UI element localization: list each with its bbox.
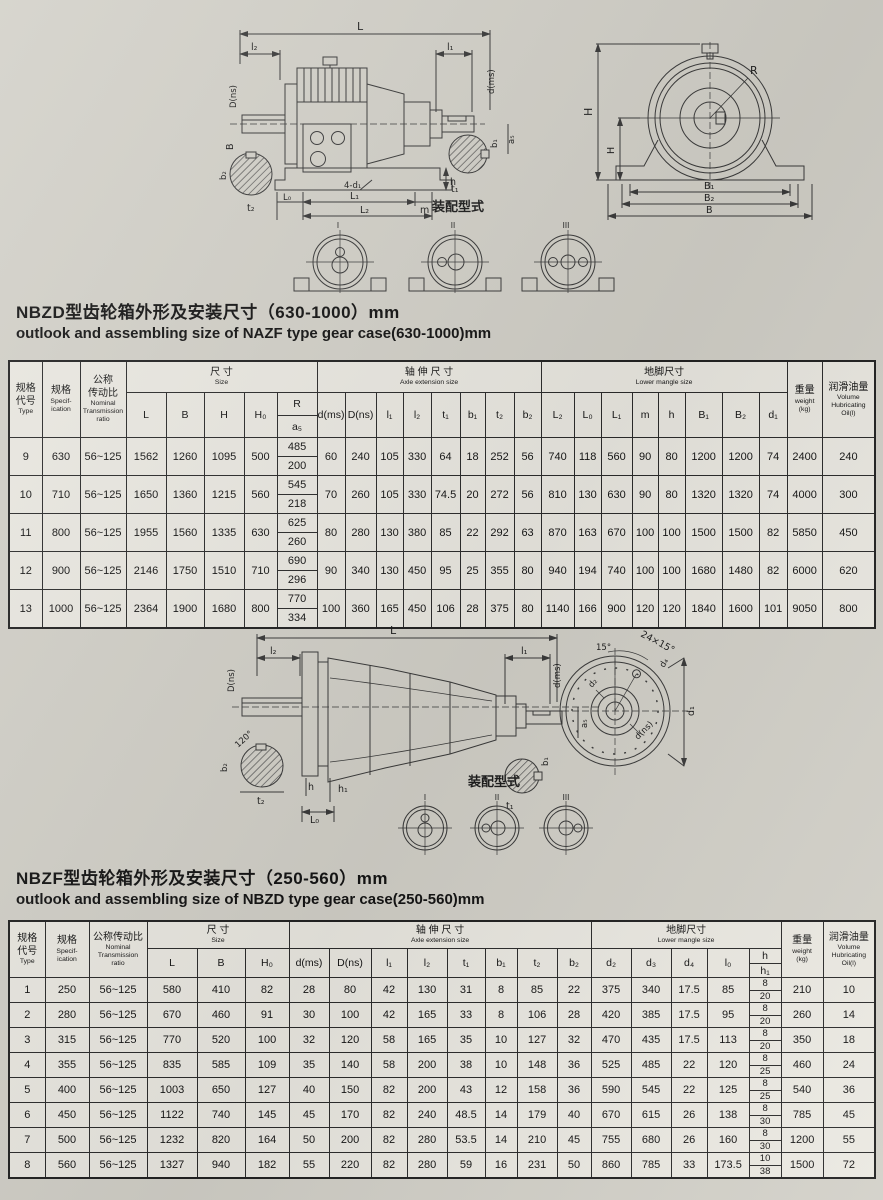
cell: 130 [407,978,447,1003]
cell: 450 [45,1103,89,1128]
col-header-t1: t₁ [431,393,460,438]
variant2-mark-3: III [563,793,570,802]
cell: 109 [245,1053,289,1078]
dim-label-Dns-2: D(ns) [227,669,237,692]
technical-drawing-nbzf: L l₂ l₁ D(ns) d(ms) a₅ 120° b₂ t₂ h h₁ L… [0,616,883,864]
cell: 40 [289,1078,329,1103]
cell: 55 [289,1153,329,1179]
cell: 85 [431,514,460,552]
cell: 2 [9,1003,45,1028]
cell: 28 [557,1003,591,1028]
dim-label-R: R [750,64,758,77]
cell: 820 [749,1003,781,1028]
cell: 250 [45,978,89,1003]
dim-label-b1: b₁ [490,139,500,148]
cell: 355 [485,552,514,590]
cell: 5 [9,1078,45,1103]
col-header-t2-t2: t₂ [517,949,557,978]
dim-label-b2-2: b₂ [220,763,230,772]
variant-mark-2: II [451,221,455,230]
cell: 615 [631,1103,671,1128]
cell: 80 [658,438,685,476]
cell: 28 [289,978,329,1003]
cell: 170 [329,1103,371,1128]
cell: 460 [781,1053,823,1078]
assembly-type-caption: 装配型式 [431,199,484,215]
cell: 630 [42,438,80,476]
cell: 56 [514,438,541,476]
group-header-axle: 轴 伸 尺 寸Axle extension size [317,361,541,393]
cell: 280 [45,1003,89,1028]
dim-label-h1-2: h₁ [338,784,348,795]
dim-label-d1: d₁ [686,706,697,716]
cell: 2146 [126,552,166,590]
cell: 82 [759,514,787,552]
cell: 82 [245,978,289,1003]
cell: 260 [781,1003,823,1028]
dimension-table-nbzf: 规格 代号Type 规格Specif- ication 公称传动比Nominal… [8,920,876,1179]
cell: 1955 [126,514,166,552]
cell: 240 [345,438,376,476]
cell: 690296 [277,552,317,590]
col-header-ratio: 公称 传动比Nominal Transmission ratio [80,361,126,438]
cell: 10 [823,978,875,1003]
cell: 64 [431,438,460,476]
cell: 22 [557,978,591,1003]
dim-label-dns-front: d(ns) [633,720,656,743]
col-header-dms: d(ms) [317,393,345,438]
cell: 127 [517,1028,557,1053]
cell: 12 [485,1078,517,1103]
cell: 620 [822,552,875,590]
cell: 1320 [685,476,722,514]
dim-label-B-front: B [706,205,713,216]
cell: 125 [707,1078,749,1103]
cell: 42 [371,1003,407,1028]
col-header-l1-t2: l₁ [371,949,407,978]
cell: 31 [447,978,485,1003]
cell: 8 [485,978,517,1003]
cell: 145 [245,1103,289,1128]
cell: 56~125 [89,1053,147,1078]
table-row: 645056~1251122740145451708224048.5141794… [9,1103,875,1128]
cell: 590 [591,1078,631,1103]
cell: 520 [197,1028,245,1053]
cell: 330 [403,476,431,514]
cell: 940 [541,552,574,590]
cell: 1095 [204,438,244,476]
col-header-spec-2: 规格Specif- ication [45,921,89,978]
cell: 18 [823,1028,875,1053]
cell: 830 [749,1128,781,1153]
cell: 4000 [787,476,822,514]
cell: 210 [781,978,823,1003]
cell: 22 [671,1078,707,1103]
cell: 10 [9,476,42,514]
cell: 525 [591,1053,631,1078]
col-header-L0: L₀ [574,393,601,438]
cell: 150 [329,1078,371,1103]
cell: 380 [403,514,431,552]
cell: 148 [517,1053,557,1078]
cell: 485200 [277,438,317,476]
cell: 74.5 [431,476,460,514]
cell: 500 [244,438,277,476]
cell: 74 [759,438,787,476]
cell: 1215 [204,476,244,514]
col-header-l2: l₂ [403,393,431,438]
cell: 95 [431,552,460,590]
cell: 45 [823,1103,875,1128]
cell: 14 [823,1003,875,1028]
cell: 17.5 [671,978,707,1003]
cell: 1335 [204,514,244,552]
col-header-type: 规格 代号Type [9,361,42,438]
cell: 173.5 [707,1153,749,1179]
cell: 1480 [722,552,759,590]
dim-label-l1: l₁ [447,42,454,53]
cell: 670 [591,1103,631,1128]
dim-label-L1: L₁ [350,191,359,202]
cell: 80 [329,978,371,1003]
cell: 470 [591,1028,631,1053]
cell: 82 [371,1128,407,1153]
cell: 90 [632,476,658,514]
cell: 1562 [126,438,166,476]
cell: 12 [9,552,42,590]
col-header-oil: 润滑油量Volume Hubricating Oil(l) [822,361,875,438]
cell: 710 [244,552,277,590]
cell: 70 [317,476,345,514]
cell: 53.5 [447,1128,485,1153]
cell: 375 [591,978,631,1003]
col-header-b2-t2: b₂ [557,949,591,978]
cell: 100 [329,1003,371,1028]
cell: 1500 [685,514,722,552]
cell: 56~125 [89,1003,147,1028]
cell: 630 [601,476,632,514]
cell: 625260 [277,514,317,552]
flange-gearbox-side-view [232,634,600,822]
cell: 252 [485,438,514,476]
col-header-dms-t2: d(ms) [289,949,329,978]
dim-label-b2: b₂ [219,171,229,180]
table-row: 540056~125100365012740150822004312158365… [9,1078,875,1103]
cell: 1560 [166,514,204,552]
cell: 210 [517,1128,557,1153]
cell: 545218 [277,476,317,514]
dim-label-dms-2: d(ms) [553,663,563,688]
dim-label-4-d1: 4-d₁ [344,181,361,191]
cell: 58 [371,1028,407,1053]
cell: 560 [244,476,277,514]
cell: 95 [707,1003,749,1028]
cell: 200 [329,1128,371,1153]
cell: 165 [407,1028,447,1053]
cell: 72 [823,1153,875,1179]
cell: 800 [42,514,80,552]
cell: 82 [371,1103,407,1128]
cell: 820 [749,1028,781,1053]
cell: 105 [376,476,403,514]
table-row: 1071056~12516501360121556054521870260105… [9,476,875,514]
assembly-type-caption-2: 装配型式 [467,774,520,790]
cell: 56~125 [89,978,147,1003]
cell: 56~125 [89,1028,147,1053]
col-header-d3: d₃ [631,949,671,978]
cell: 231 [517,1153,557,1179]
col-header-H0-2: H₀ [245,949,289,978]
cell: 1038 [749,1153,781,1179]
dim-label-B1: B₁ [704,181,715,192]
col-header-B-2: B [197,949,245,978]
cell: 260 [345,476,376,514]
cell: 280 [345,514,376,552]
dim-label-L0: L₀ [283,193,292,203]
cell: 25 [460,552,485,590]
cell: 26 [671,1128,707,1153]
cell: 755 [591,1128,631,1153]
cell: 182 [245,1153,289,1179]
cell: 545 [631,1078,671,1103]
cell: 630 [244,514,277,552]
cell: 650 [197,1078,245,1103]
col-header-b1: b₁ [460,393,485,438]
technical-drawing-nbzd: L l₂ l₁ D(ns) B d(ms) a₅ t₂ b₂ t₁ b₁ L₀ … [0,4,883,296]
cell: 11 [9,514,42,552]
cell: 1500 [781,1153,823,1179]
cell: 14 [485,1128,517,1153]
cell: 16 [485,1153,517,1179]
cell: 85 [707,978,749,1003]
cell: 82 [371,1153,407,1179]
group-header-size: 尺 寸Size [126,361,317,393]
dim-label-h-2: h [308,782,314,793]
col-header-L-2: L [147,949,197,978]
cell: 770 [147,1028,197,1053]
dim-label-B: B [225,143,236,150]
variant-mark-1: I [337,221,339,230]
section-title-2-zh: NBZF型齿轮箱外形及安装尺寸（250-560）mm [16,864,484,889]
cell: 2400 [787,438,822,476]
cell: 165 [407,1003,447,1028]
dim-label-l2: l₂ [251,42,258,53]
dim-label-H-inner: H [606,147,617,154]
table-row: 125056~125580410822880421303188522375340… [9,978,875,1003]
cell: 42 [371,978,407,1003]
cell: 1650 [126,476,166,514]
cell: 17.5 [671,1003,707,1028]
col-header-l1: l₁ [376,393,403,438]
cell: 785 [781,1103,823,1128]
cell: 56~125 [89,1128,147,1153]
cell: 105 [376,438,403,476]
cell: 45 [557,1128,591,1153]
col-header-b2: b₂ [514,393,541,438]
section-title-2: NBZF型齿轮箱外形及安装尺寸（250-560）mm outlook and a… [16,864,484,908]
dim-label-L0-2: L₀ [310,815,319,826]
dim-label-a5-2: a₅ [580,719,590,728]
table-row: 750056~1251232820164502008228053.5142104… [9,1128,875,1153]
table-row: 963056~125156212601095500485200602401053… [9,438,875,476]
cell: 58 [371,1053,407,1078]
section-title-2-en: outlook and assembling size of NBZD type… [16,891,484,908]
cell: 9 [9,438,42,476]
cell: 200 [407,1078,447,1103]
cell: 60 [317,438,345,476]
assembly-variant-diagrams-2 [398,801,593,855]
dim-label-L2draw: L [390,624,397,637]
table-row: 331556~125770520100321205816535101273247… [9,1028,875,1053]
col-header-ratio-2: 公称传动比Nominal Transmission ratio [89,921,147,978]
col-header-d4-t2: d₄ [671,949,707,978]
cell: 10 [485,1028,517,1053]
cell: 82 [371,1078,407,1103]
dim-label-Dns: D(ns) [229,85,239,108]
col-header-weight-2: 重量weight (kg) [781,921,823,978]
dim-label-m: m [420,205,429,216]
cell: 56~125 [89,1078,147,1103]
cell: 80 [658,476,685,514]
cell: 32 [289,1028,329,1053]
cell: 450 [822,514,875,552]
gearbox-side-view [230,30,508,220]
col-header-B: B [166,393,204,438]
col-header-H0: H₀ [244,393,277,438]
cell: 163 [574,514,601,552]
cell: 485 [631,1053,671,1078]
cell: 164 [245,1128,289,1153]
cell: 1260 [166,438,204,476]
variant-mark-3: III [563,221,570,230]
cell: 860 [591,1153,631,1179]
col-header-B2: B₂ [722,393,759,438]
cell: 350 [781,1028,823,1053]
cell: 330 [403,438,431,476]
cell: 200 [407,1053,447,1078]
cell: 56~125 [80,552,126,590]
cell: 940 [197,1153,245,1179]
cell: 30 [289,1003,329,1028]
cell: 900 [42,552,80,590]
col-header-m: m [632,393,658,438]
cell: 560 [45,1153,89,1179]
cell: 100 [245,1028,289,1053]
cell: 1360 [166,476,204,514]
cell: 220 [329,1153,371,1179]
col-header-h-h1: hh₁ [749,949,781,978]
cell: 1750 [166,552,204,590]
col-header-L2: L₂ [541,393,574,438]
cell: 36 [823,1078,875,1103]
cell: 38 [447,1053,485,1078]
cell: 435 [631,1028,671,1053]
cell: 8 [485,1003,517,1028]
dim-label-h: h [450,177,456,188]
cell: 55 [823,1128,875,1153]
cell: 385 [631,1003,671,1028]
cell: 820 [749,978,781,1003]
cell: 100 [632,552,658,590]
cell: 400 [45,1078,89,1103]
cell: 740 [197,1103,245,1128]
cell: 18 [460,438,485,476]
col-header-b1-t2: b₁ [485,949,517,978]
cell: 292 [485,514,514,552]
cell: 120 [707,1053,749,1078]
cell: 40 [557,1103,591,1128]
cell: 825 [749,1053,781,1078]
cell: 7 [9,1128,45,1153]
cell: 158 [517,1078,557,1103]
cell: 17.5 [671,1028,707,1053]
cell: 785 [631,1153,671,1179]
cell: 6 [9,1103,45,1128]
col-header-Dns-t2: D(ns) [329,949,371,978]
cell: 680 [631,1128,671,1153]
cell: 36 [557,1053,591,1078]
cell: 56 [514,476,541,514]
cell: 1320 [722,476,759,514]
cell: 106 [517,1003,557,1028]
col-header-weight: 重量weight (kg) [787,361,822,438]
cell: 300 [822,476,875,514]
col-header-type-2: 规格 代号Type [9,921,45,978]
cell: 22 [671,1053,707,1078]
dim-label-H: H [582,108,595,116]
cell: 710 [42,476,80,514]
cell: 4 [9,1053,45,1078]
cell: 460 [197,1003,245,1028]
cell: 120 [329,1028,371,1053]
cell: 50 [557,1153,591,1179]
cell: 585 [197,1053,245,1078]
cell: 48.5 [447,1103,485,1128]
cell: 80 [514,552,541,590]
col-header-B1: B₁ [685,393,722,438]
cell: 82 [759,552,787,590]
dim-label-t2: t₂ [247,203,255,214]
cell: 26 [671,1103,707,1128]
group-header-size-2: 尺 寸Size [147,921,289,949]
table-row: 228056~125670460913010042165338106284203… [9,1003,875,1028]
cell: 5850 [787,514,822,552]
dim-label-t2-2: t₂ [257,796,265,807]
cell: 1680 [685,552,722,590]
cell: 43 [447,1078,485,1103]
col-header-L: L [126,393,166,438]
col-header-d1: d₁ [759,393,787,438]
cell: 160 [707,1128,749,1153]
cell: 50 [289,1128,329,1153]
cell: 24 [823,1053,875,1078]
col-header-t1-t2: t₁ [447,949,485,978]
cell: 33 [447,1003,485,1028]
cell: 36 [557,1078,591,1103]
col-header-d2: d₂ [591,949,631,978]
cell: 130 [574,476,601,514]
col-header-L1: L₁ [601,393,632,438]
cell: 1327 [147,1153,197,1179]
cell: 580 [147,978,197,1003]
cell: 14 [485,1103,517,1128]
cell: 130 [376,514,403,552]
col-header-t2: t₂ [485,393,514,438]
dim-label-a5: a₅ [507,135,517,144]
cell: 240 [822,438,875,476]
cell: 820 [197,1128,245,1153]
group-header-axle-2: 轴 伸 尺 寸Axle extension size [289,921,591,949]
